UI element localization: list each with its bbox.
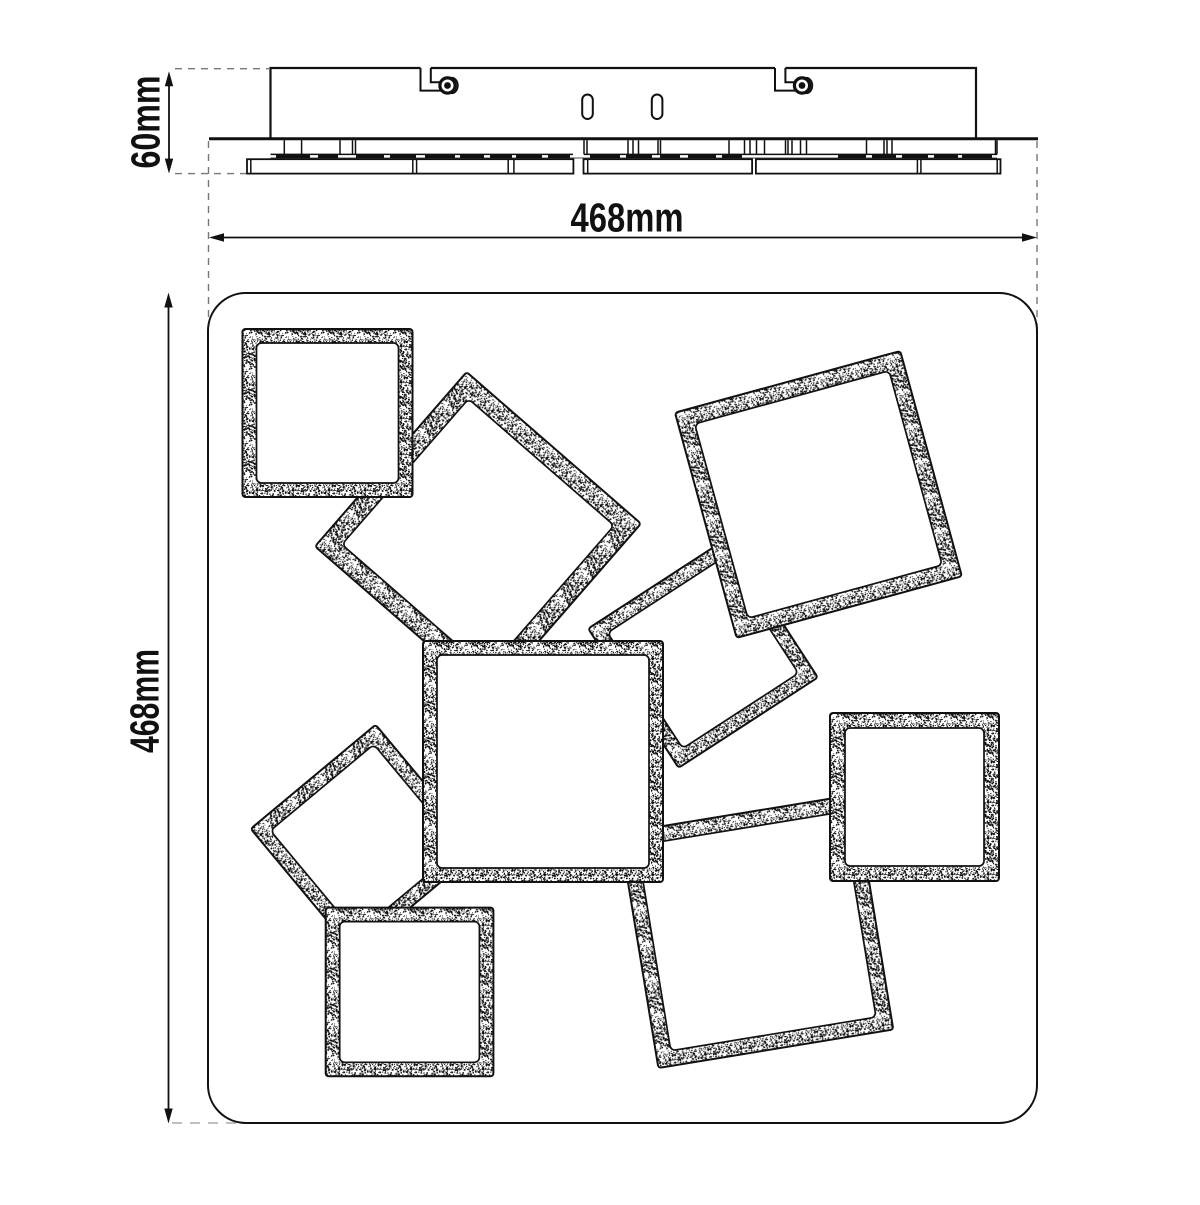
svg-text:60mm: 60mm [123,76,169,169]
svg-text:468mm: 468mm [571,195,684,241]
svg-text:468mm: 468mm [122,649,168,753]
